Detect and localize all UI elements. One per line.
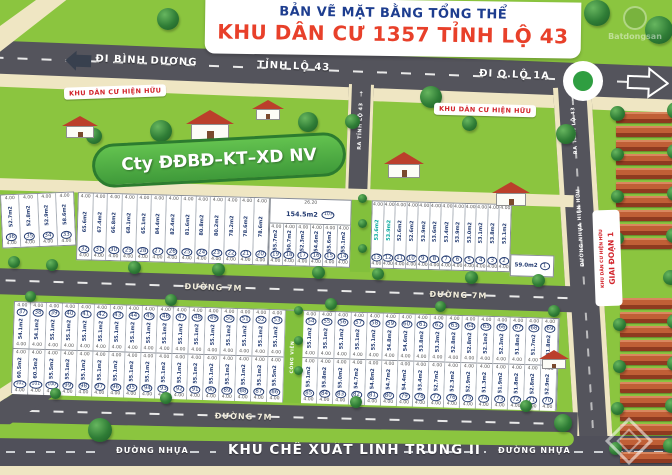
lot-dimension: 4.00: [496, 357, 506, 362]
lot-43: 4.004355.1m24.00: [109, 305, 125, 352]
lot-dimension: 4.00: [452, 264, 462, 269]
sidewalk-bottom: [0, 466, 672, 475]
lot-97: 4.0055.1m2974.00: [92, 351, 108, 397]
lot-dimension: 4.00: [108, 254, 118, 259]
lot-number: 15: [324, 252, 335, 260]
lot-74: 4.0051.3m2744.00: [476, 363, 492, 409]
lot-dimension: 4.00: [416, 354, 426, 359]
lot-area: 55.1m2: [177, 321, 184, 347]
lot-dimension: 4.00: [432, 355, 442, 360]
house-icon: [384, 152, 424, 178]
lot-area: 55.1m2: [192, 360, 199, 386]
lot-dimension: 4.00: [174, 393, 184, 398]
arrow-left-icon: [65, 50, 92, 71]
townhouse-bar: [616, 154, 672, 165]
lot-dimension: 4.00: [167, 256, 177, 261]
road-label-duong-nhua-right: ĐƯỜNG NHỰA: [498, 446, 571, 455]
lot-area: 52.1m2: [482, 331, 489, 357]
lot-group-103: 26.20 154.5m2 103 4.0055.7m2194.004.0050…: [268, 197, 352, 267]
lot-dimension: 4.00: [479, 403, 489, 408]
tree-icon: [294, 366, 303, 375]
lot-18: 4.0050.7m2184.00: [283, 224, 298, 265]
lot-dimension: 4.00: [369, 353, 379, 358]
lot-dimension: 4.00: [269, 396, 279, 401]
lot-area: 55.1m2: [193, 322, 200, 348]
lot-103: 26.20 154.5m2 103: [269, 197, 352, 225]
lot-dimension: 4.00: [321, 351, 331, 356]
lot-dimension: 4.00: [429, 263, 439, 268]
lot-dimension: 4.00: [138, 255, 148, 260]
townhouse-bar: [616, 182, 672, 193]
lot-94: 4.0055.1m2944.00: [140, 353, 156, 399]
lot-dimension: 4.00: [110, 391, 120, 396]
lot-80: 4.0054.7m2804.00: [381, 360, 397, 406]
tree-icon: [157, 8, 179, 30]
lot-area: 65.6m2: [81, 199, 88, 245]
lot-37: 4.003754.1m24.00: [14, 302, 30, 349]
lot-area: 78.2m2: [228, 203, 235, 249]
lot-dimension: 4.00: [495, 403, 505, 408]
lot-area: 55.1m2: [241, 323, 248, 349]
lot-dimension: 4.00: [542, 405, 552, 410]
lot-17: 4.0052.3m2174.00: [296, 224, 311, 265]
road-label-duong-nhua-hien-huu: ĐƯỜNG NHỰA HIỆN HỮU: [575, 188, 586, 266]
house-body: [388, 164, 419, 178]
lot-area: 55.1m2: [144, 359, 151, 385]
lot-area: 68.1m2: [125, 200, 132, 246]
lot-area: 55.1m2: [98, 319, 105, 345]
lot-area: 55.1m2: [371, 327, 378, 353]
lot-area: 66.8m2: [111, 200, 118, 246]
lot-88: 4.0055.1m2884.00: [235, 356, 251, 402]
lot-dimension: 4.00: [196, 256, 206, 261]
lot-14: 4.0055.1m2144.00: [336, 225, 350, 266]
lot-91: 4.0055.1m2914.00: [187, 354, 203, 400]
road-label-di-q-lo-1a: ĐI Q.LỘ 1A: [479, 68, 550, 82]
house-roof: [186, 110, 234, 124]
lot-dimension: 4.00: [271, 350, 281, 355]
lot-number: 103: [322, 210, 335, 218]
house-roof: [492, 182, 530, 193]
lot-dimension: 4.00: [48, 343, 58, 348]
lot-area: 53.9m2: [420, 209, 427, 255]
lot-area: 55.1m2: [113, 358, 120, 384]
lot-area: 55.1m2: [176, 360, 183, 386]
lot-79: 4.0054.4m2794.00: [396, 361, 412, 407]
lot-dimension: 4.00: [324, 260, 334, 265]
lot-area: 55.1m2: [65, 356, 72, 382]
lot-dimension: 4.00: [499, 265, 509, 270]
lot-dimension: 4.00: [441, 263, 451, 268]
lot-area: 55.1m2: [82, 318, 89, 344]
townhouse-bar: [616, 196, 672, 207]
lot-78: 4.0053.4m2784.00: [412, 361, 428, 407]
lot-dimension: 4.00: [64, 343, 74, 348]
lot-row-19-14: 4.0055.7m2194.004.0050.7m2184.004.0052.3…: [268, 223, 351, 267]
lot-33: 4.0058.6m2334.00: [56, 193, 75, 246]
label-existing-residential-1: KHU DÂN CƯ HIỆN HỮU: [64, 84, 167, 100]
lot-area: 51.8m2: [514, 332, 521, 358]
lot-dimension: 4.00: [384, 353, 394, 358]
lot-area: 52.9m2: [545, 371, 552, 397]
lot-number: 3: [487, 257, 497, 265]
lot-dimension: 4.00: [528, 358, 538, 363]
lot-dimension: 4.00: [383, 400, 393, 405]
lot-area: 55.1m2: [146, 320, 153, 346]
tree-icon: [25, 291, 36, 302]
lot-area: 52.8m2: [466, 330, 473, 356]
lot-block-lower: 4.003754.1m24.004.0060.5m21024.004.00385…: [11, 301, 560, 410]
tree-icon: [50, 388, 61, 399]
lot-area: 58.6m2: [62, 199, 69, 231]
road-label-khu-che-xuat: KHU CHẾ XUẤT LINH TRUNG II: [228, 442, 481, 458]
watermark-text: Batdongsan: [600, 32, 670, 41]
lot-dimension: 4.00: [338, 260, 348, 265]
lot-area: 55.1m2: [273, 324, 280, 350]
lot-89: 4.0055.1m2894.00: [219, 355, 235, 401]
lot-75: 4.0052.9m2754.00: [460, 363, 476, 409]
road-centerline: [6, 409, 558, 424]
lot-58: 4.005855.1m24.00: [366, 313, 382, 360]
lot-dimension: 4.00: [61, 239, 71, 244]
lot-area: 53.4m2: [443, 209, 450, 255]
lot-1-column: 59.0m2 1: [510, 204, 558, 277]
townhouse-bar: [620, 382, 672, 393]
lot-dimension: 4.00: [431, 401, 441, 406]
lot-dimension: 4.00: [464, 356, 474, 361]
lot-area: 55.1m2: [224, 361, 231, 387]
lot-area: 55.1m2: [162, 321, 169, 347]
lot-87: 4.0055.1m2874.00: [251, 356, 267, 402]
lot-dimension: 4.00: [319, 398, 329, 403]
lot-62: 4.006253.3m24.00: [430, 315, 446, 362]
lot-59: 4.005954.8m24.00: [382, 314, 398, 361]
lot-area: 60.5m2: [17, 355, 24, 381]
lot-area: 52.3m2: [449, 368, 456, 394]
lot-39: 4.003955.1m24.00: [45, 303, 61, 350]
lot-area: 55.1m2: [323, 326, 330, 352]
lot-area: 60.5m2: [33, 355, 40, 381]
road-label-duong-7m: ĐƯỜNG 7M: [215, 411, 273, 421]
tree-icon: [358, 194, 367, 203]
lot-46: 4.004655.1m24.00: [157, 307, 173, 354]
lot-area: 51.8m2: [513, 370, 520, 396]
lot-dimension: 4.00: [394, 262, 404, 267]
tree-icon: [611, 402, 624, 415]
tree-icon: [294, 306, 303, 315]
lot-area: 65.1m2: [140, 201, 147, 247]
lot-dimension: 4.00: [400, 354, 410, 359]
road-connector: ↑ RA TỈNH LỘ 43: [345, 84, 374, 199]
lot-area: 53.1m2: [478, 210, 485, 256]
lot-area: 53.6m2: [432, 209, 439, 255]
lot-area: 55.5m2: [49, 356, 56, 382]
lot-dimension: 4.00: [399, 400, 409, 405]
lot-dimension: 4.00: [62, 390, 72, 395]
road-label-tinh-lo-43: TỈNH LỘ 43: [257, 60, 330, 74]
townhouse-bar: [616, 168, 672, 179]
lot-dimension: 4.00: [128, 345, 138, 350]
lot-area: 51.3m2: [481, 369, 488, 395]
lot-36: 4.0052.7m2364.00: [1, 195, 21, 248]
lot-dimension: 4.00: [79, 253, 89, 258]
lot-dimension: 4.00: [487, 265, 497, 270]
lot-99: 4.0055.1m2994.00: [60, 350, 76, 396]
lot-dimension: 4.00: [303, 397, 313, 402]
lot-95: 4.0055.1m2954.00: [124, 352, 140, 398]
tree-icon: [128, 261, 141, 274]
lot-52: 4.005255.1m24.00: [252, 310, 268, 357]
lot-50: 4.005055.1m24.00: [221, 309, 237, 356]
lot-area: 54.7m2: [354, 365, 361, 391]
label-giai-doan-1: GIAI ĐOẠN 1: [606, 231, 617, 284]
lot-16: 4.0054.6m2164.00: [310, 225, 325, 266]
tree-icon: [465, 271, 478, 284]
lot-area: 53.9m2: [455, 210, 462, 256]
lot-81: 4.0054.8m2814.00: [365, 360, 381, 406]
lot-area: 52.7m2: [7, 201, 14, 233]
lot-dimension: 4.00: [112, 345, 122, 350]
tree-icon: [358, 244, 367, 253]
lot-area: 55.1m2: [355, 327, 362, 353]
lot-dimension: 4.00: [190, 394, 200, 399]
house-roof: [539, 350, 569, 359]
lot-dimension: 4.00: [32, 342, 42, 347]
lot-number: 6: [452, 256, 462, 264]
lot-dimension: 4.00: [43, 239, 53, 244]
lot-area: 81.6m2: [184, 202, 191, 248]
lot-dimension: 4.00: [206, 394, 216, 399]
lot-area: 52.3m2: [498, 331, 505, 357]
lot-dimension: 4.00: [25, 240, 35, 245]
lot-85: 4.0055.1m2854.00: [301, 358, 317, 404]
lot-area: 55.1m2: [339, 326, 346, 352]
tree-icon: [548, 305, 560, 317]
lot-57: 4.005755.1m24.00: [350, 313, 366, 360]
tree-icon: [350, 396, 362, 408]
lot-dimension: 4.00: [512, 357, 522, 362]
townhouse-bar: [616, 238, 672, 249]
lot-92: 4.0055.1m2924.00: [171, 354, 187, 400]
lot-area: 51.7m2: [530, 332, 537, 358]
tree-icon: [663, 438, 672, 453]
lot-dimension: 4.00: [270, 259, 280, 264]
lot-dimension: 4.00: [415, 401, 425, 406]
tree-icon: [556, 124, 576, 144]
lot-area: 54.4m2: [401, 367, 408, 393]
lot-dimension: 4.00: [143, 346, 153, 351]
lot-dimension: 4.00: [255, 258, 265, 263]
roundabout-center: [573, 71, 593, 91]
lot-dimension: 4.00: [464, 264, 474, 269]
lot-area: 53.8m2: [489, 211, 496, 257]
lot-area: 54.8m2: [387, 328, 394, 354]
lot-dimension: 4.00: [126, 392, 136, 397]
lot-84: 4.0055.8m2844.00: [317, 358, 333, 404]
lot-area: 78.6m2: [258, 204, 265, 250]
road-label-duong-nhua-left: ĐƯỜNG NHỰA: [116, 446, 189, 455]
lot-dimension: 4.00: [94, 254, 104, 259]
tree-icon: [435, 301, 446, 312]
lot-53: 4.005355.1m24.00: [268, 310, 284, 357]
lot-55: 4.005555.1m24.00: [318, 312, 334, 359]
lot-number: 1: [540, 262, 550, 270]
tree-icon: [325, 298, 337, 310]
house-icon: [186, 110, 234, 140]
lot-number: 7: [441, 255, 451, 263]
tree-icon: [46, 259, 58, 271]
house-icon: [492, 182, 530, 206]
tree-icon: [312, 266, 325, 279]
site-plan: ĐI BÌNH DƯƠNG TỈNH LỘ 43 ĐI Q.LỘ 1A ↑ RA…: [0, 0, 672, 475]
lot-area: 55.1m2: [130, 320, 137, 346]
lot-area: 80.8m2: [199, 203, 206, 249]
tree-icon: [345, 114, 360, 129]
lot-area: 53.0m2: [466, 210, 473, 256]
lot-area: 53.4m2: [417, 367, 424, 393]
lot-98: 4.0055.1m2984.00: [76, 351, 92, 397]
lot-60: 4.006054.6m24.00: [398, 314, 414, 361]
lot-dimension: 4.00: [15, 388, 25, 393]
company-banner: Cty ĐĐBĐ–KT–XD NV: [91, 131, 347, 188]
watermark-tree-icon: [623, 6, 647, 30]
road-dashes: [190, 451, 216, 453]
lot-area: 52.8m2: [529, 371, 536, 397]
lot-area: 55.1m2: [160, 359, 167, 385]
lot-dimension: 4.00: [305, 351, 315, 356]
tree-icon: [160, 392, 172, 404]
lot-dimension: 4.00: [223, 348, 233, 353]
label-existing-residential-3: KHU DÂN CƯ HIỆN HỮU: [598, 229, 605, 288]
lot-number: 9: [418, 255, 428, 263]
lot-dimension: 4.00: [240, 258, 250, 263]
lot-area: 55.1m2: [257, 324, 264, 350]
house-body: [496, 193, 526, 206]
lot-dimension: 4.00: [371, 261, 381, 266]
lot-block-upper: 4.0052.7m2364.004.0052.8m2354.004.0052.9…: [0, 190, 558, 283]
lot-area: 55.1m2: [306, 364, 313, 390]
tree-icon: [372, 268, 384, 280]
lot-dimension: 4.00: [152, 255, 162, 260]
lot-67: 4.006751.8m24.00: [509, 318, 525, 365]
lot-row-13-2: 4.0053.6m2134.004.0053.9m2124.004.0052.6…: [370, 200, 512, 272]
lot-56: 4.005655.1m24.00: [334, 312, 350, 359]
lot-dimension: 4.00: [123, 254, 133, 259]
lot-20: 4.0078.6m2204.00: [253, 198, 269, 264]
lot-dimension: 4.00: [254, 396, 264, 401]
lot-area: 55.7m2: [273, 230, 280, 251]
lot-area: 84.4m2: [155, 201, 162, 247]
lot-47: 4.004755.1m24.00: [173, 307, 189, 354]
lot-area: 52.8m2: [25, 200, 32, 232]
lot-dimension: 4.00: [406, 262, 416, 267]
townhouse-bar: [620, 298, 672, 309]
lot-number: 5: [464, 256, 474, 264]
lot-38: 4.003854.1m24.00: [29, 303, 45, 350]
lot-dimension: 4.00: [222, 395, 232, 400]
lot-48: 4.004855.1m24.00: [189, 308, 205, 355]
lot-area: 67.4m2: [96, 200, 103, 246]
lot-63: 4.006352.8m24.00: [446, 316, 462, 363]
tree-icon: [554, 414, 572, 432]
lot-73: 4.0051.9m2734.00: [492, 364, 508, 410]
tree-icon: [520, 400, 532, 412]
townhouse-bar: [616, 224, 672, 235]
lot-area: 55.1m2: [225, 323, 232, 349]
townhouse-bar: [620, 340, 672, 351]
lot-dimension: 4.00: [142, 392, 152, 397]
lot-dimension: 4.00: [182, 256, 192, 261]
lot-dimension: 4.00: [94, 391, 104, 396]
lot-51: 4.005155.1m24.00: [237, 309, 253, 356]
lot-dimension: 4.00: [284, 259, 294, 264]
lot-76: 4.0052.3m2764.00: [444, 362, 460, 408]
green-walkway-strip: [350, 200, 372, 273]
watermark-logo: Batdongsan: [600, 6, 670, 41]
roundabout: [563, 61, 603, 101]
label-existing-residential-2: KHU DÂN CƯ HIỆN HỮU: [434, 103, 537, 118]
lot-area: 53.1m2: [501, 211, 508, 257]
house-icon: [62, 116, 98, 138]
house-roof: [62, 116, 98, 126]
tree-icon: [613, 360, 626, 373]
lot-area: 55.1m2: [97, 357, 104, 383]
lot-area: 54.6m2: [403, 328, 410, 354]
lot-area: 154.5m2: [286, 209, 318, 218]
lot-area: 55.8m2: [322, 364, 329, 390]
townhouse-bar: [616, 126, 672, 137]
lot-area: 50.7m2: [286, 230, 293, 251]
lot-number: 8: [429, 255, 439, 263]
lot-dimension: 4.00: [238, 395, 248, 400]
lot-dimension: 4.00: [353, 352, 363, 357]
townhouse-bar: [620, 312, 672, 323]
lot-area: 55.1m2: [208, 361, 215, 387]
lot-1: 59.0m2 1: [510, 254, 555, 277]
lot-area: 55.1m2: [114, 319, 121, 345]
house-body: [542, 359, 565, 369]
lot-42: 4.004255.1m24.00: [93, 305, 109, 352]
lot-102: 4.0060.5m21024.00: [12, 349, 28, 395]
tree-icon: [462, 116, 477, 131]
lot-44: 4.004455.1m24.00: [125, 306, 141, 353]
lot-41: 4.004155.1m24.00: [77, 304, 93, 351]
lot-area: 82.4m2: [169, 202, 176, 248]
townhouse-row-upper: [616, 112, 672, 249]
house-icon: [252, 100, 284, 120]
lot-dimension: 4.00: [311, 260, 321, 265]
house-body: [256, 109, 281, 120]
tree-icon: [663, 270, 672, 285]
lot-area: 55.6m2: [327, 231, 334, 252]
tree-icon: [611, 148, 624, 161]
lot-dimension: 4.00: [239, 349, 249, 354]
lot-area: 52.6m2: [397, 208, 404, 254]
lot-row-36-33: 4.0052.7m2364.004.0052.8m2354.004.0052.9…: [0, 191, 76, 248]
lot-dimension: 4.00: [367, 399, 377, 404]
arrow-up-icon: ↑: [358, 90, 364, 98]
lot-area: 53.3m2: [434, 329, 441, 355]
lot-96: 4.0055.1m2964.00: [108, 352, 124, 398]
lot-area: 53.6m2: [374, 207, 381, 253]
lot-area: 54.8m2: [369, 366, 376, 392]
lot-row-32-20: 4.0065.6m2324.004.0067.4m2314.004.0066.8…: [76, 192, 270, 265]
lot-dimension: 4.00: [297, 259, 307, 264]
lot-dimension: 4.00: [337, 352, 347, 357]
lot-area: 54.1m2: [18, 316, 25, 342]
lot-dimension: 4.00: [96, 344, 106, 349]
page-title-main: KHU DÂN CƯ 1357 TỈNH LỘ 43: [205, 19, 581, 48]
